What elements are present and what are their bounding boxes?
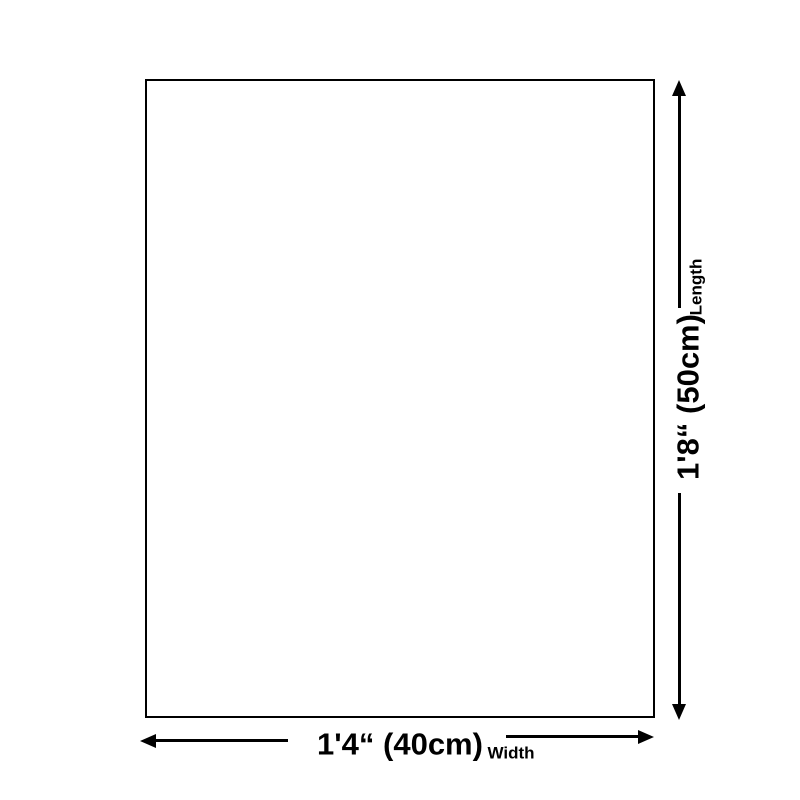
width-arrow-line-left [154, 739, 288, 742]
arrow-down-icon [672, 704, 686, 720]
length-label: Length [688, 259, 705, 316]
product-outline [145, 79, 655, 718]
dimension-diagram: Length 1'8“ (50cm) 1'4“ (40cm) Width [0, 0, 800, 800]
width-arrow-line-right [506, 735, 640, 738]
length-arrow-line-upper [678, 95, 681, 308]
arrow-right-icon [638, 730, 654, 744]
length-value: 1'8“ (50cm) [673, 314, 704, 480]
width-label: Width [487, 745, 534, 762]
width-value: 1'4“ (40cm) [317, 729, 483, 760]
arrow-up-icon [672, 80, 686, 96]
length-arrow-line-lower [678, 493, 681, 705]
